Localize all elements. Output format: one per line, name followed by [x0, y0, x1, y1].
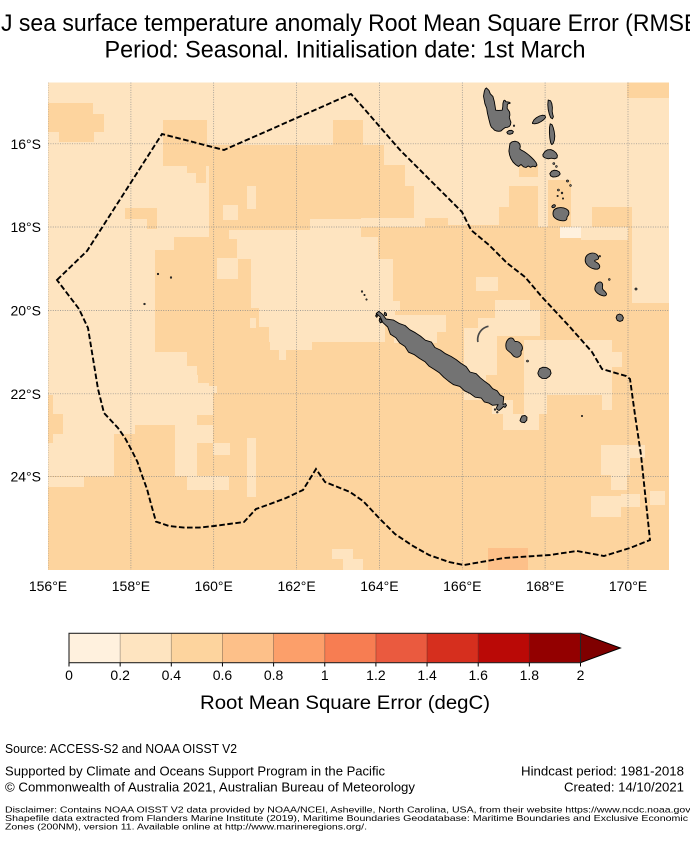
svg-text:0.2: 0.2	[110, 667, 130, 683]
svg-text:156°E: 156°E	[29, 578, 67, 594]
svg-text:Root Mean Square Error (degC): Root Mean Square Error (degC)	[200, 693, 490, 714]
svg-text:160°E: 160°E	[195, 578, 233, 594]
svg-text:1: 1	[321, 667, 329, 683]
svg-text:22°S: 22°S	[10, 386, 41, 402]
svg-text:0.8: 0.8	[264, 667, 284, 683]
svg-text:0.4: 0.4	[162, 667, 182, 683]
svg-text:16°S: 16°S	[10, 136, 41, 152]
svg-text:164°E: 164°E	[360, 578, 398, 594]
svg-text:0: 0	[65, 667, 73, 683]
svg-text:1.4: 1.4	[417, 667, 437, 683]
svg-text:Created: 14/10/2021: Created: 14/10/2021	[564, 781, 684, 795]
svg-text:Period: Seasonal. Initialisati: Period: Seasonal. Initialisation date: 1…	[105, 38, 586, 64]
svg-text:1.2: 1.2	[366, 667, 386, 683]
svg-text:158°E: 158°E	[112, 578, 150, 594]
svg-text:Zones (200NM), version 11. Ava: Zones (200NM), version 11. Available onl…	[5, 822, 367, 832]
svg-text:Hindcast period: 1981-2018: Hindcast period: 1981-2018	[521, 765, 684, 779]
svg-text:Source: ACCESS-S2 and NOAA OIS: Source: ACCESS-S2 and NOAA OISST V2	[5, 742, 237, 756]
svg-text:166°E: 166°E	[443, 578, 481, 594]
svg-text:0.6: 0.6	[213, 667, 233, 683]
svg-text:162°E: 162°E	[277, 578, 315, 594]
svg-text:J sea surface temperature anom: J sea surface temperature anomaly Root M…	[1, 11, 690, 37]
svg-text:Supported by Climate and Ocean: Supported by Climate and Oceans Support …	[5, 765, 385, 779]
svg-text:20°S: 20°S	[10, 303, 41, 319]
svg-text:18°S: 18°S	[10, 219, 41, 235]
svg-text:1.8: 1.8	[520, 667, 540, 683]
svg-text:1.6: 1.6	[468, 667, 488, 683]
svg-text:170°E: 170°E	[609, 578, 647, 594]
svg-text:24°S: 24°S	[10, 469, 41, 485]
svg-text:168°E: 168°E	[526, 578, 564, 594]
svg-text:2: 2	[577, 667, 585, 683]
svg-text:© Commonwealth of Australia 20: © Commonwealth of Australia 2021, Austra…	[5, 781, 416, 795]
